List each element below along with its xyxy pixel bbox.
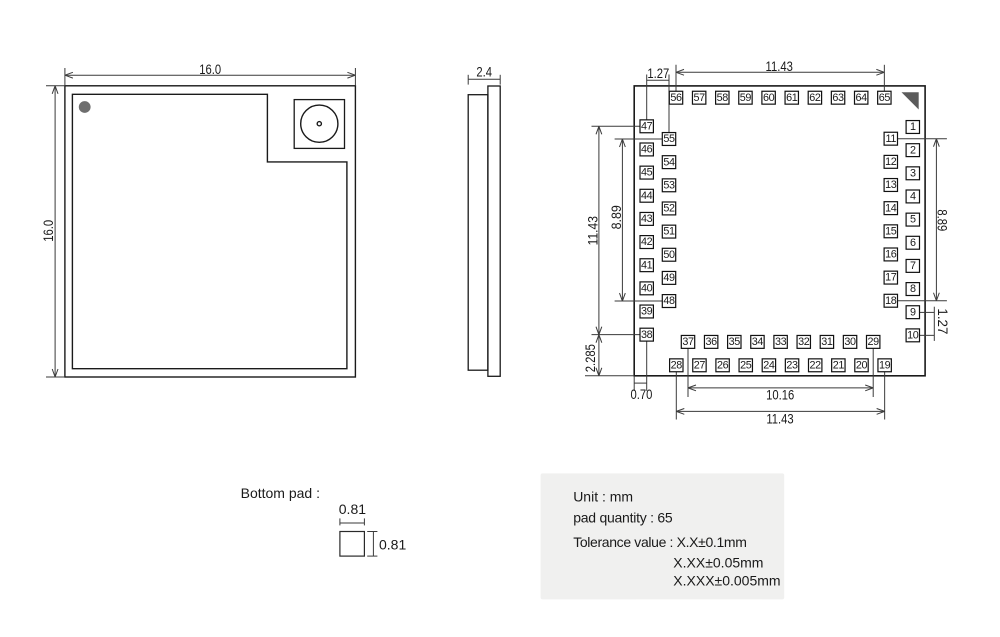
svg-text:X.XX±0.05mm: X.XX±0.05mm xyxy=(673,555,763,571)
svg-text:10: 10 xyxy=(907,329,919,341)
svg-text:38: 38 xyxy=(641,329,653,341)
svg-text:24: 24 xyxy=(763,359,775,371)
svg-text:15: 15 xyxy=(885,225,897,237)
svg-text:44: 44 xyxy=(641,190,653,202)
svg-text:0.81: 0.81 xyxy=(339,501,366,517)
svg-text:0.81: 0.81 xyxy=(379,536,406,552)
svg-text:25: 25 xyxy=(740,359,752,371)
svg-text:8.89: 8.89 xyxy=(609,205,625,229)
svg-text:40: 40 xyxy=(641,282,653,294)
svg-text:7: 7 xyxy=(910,260,916,272)
svg-text:54: 54 xyxy=(663,156,675,168)
svg-text:34: 34 xyxy=(752,336,764,348)
svg-text:43: 43 xyxy=(641,213,653,225)
svg-text:9: 9 xyxy=(910,306,916,318)
svg-text:30: 30 xyxy=(844,336,856,348)
svg-text:27: 27 xyxy=(694,359,706,371)
svg-text:56: 56 xyxy=(670,92,682,104)
svg-text:X.XXX±0.005mm: X.XXX±0.005mm xyxy=(673,573,780,589)
svg-text:33: 33 xyxy=(775,336,787,348)
svg-text:1.27: 1.27 xyxy=(935,308,950,334)
svg-text:36: 36 xyxy=(705,336,717,348)
svg-text:2.285: 2.285 xyxy=(583,344,598,372)
svg-text:22: 22 xyxy=(810,359,822,371)
svg-text:45: 45 xyxy=(641,167,653,179)
svg-text:Unit : mm: Unit : mm xyxy=(573,489,633,505)
svg-text:11.43: 11.43 xyxy=(766,412,793,427)
svg-text:18: 18 xyxy=(885,295,897,307)
svg-text:17: 17 xyxy=(885,272,897,284)
svg-text:50: 50 xyxy=(663,249,675,261)
svg-text:28: 28 xyxy=(671,359,683,371)
svg-text:51: 51 xyxy=(663,226,675,238)
svg-text:0.70: 0.70 xyxy=(631,387,653,402)
svg-text:55: 55 xyxy=(663,133,675,145)
svg-text:Tolerance value : X.X±0.1mm: Tolerance value : X.X±0.1mm xyxy=(573,534,746,550)
svg-text:26: 26 xyxy=(717,359,729,371)
svg-text:31: 31 xyxy=(821,336,833,348)
svg-text:2: 2 xyxy=(910,144,916,156)
svg-text:32: 32 xyxy=(798,336,810,348)
svg-text:23: 23 xyxy=(786,359,798,371)
svg-text:64: 64 xyxy=(856,92,868,104)
svg-text:16.0: 16.0 xyxy=(199,62,221,77)
svg-text:21: 21 xyxy=(833,359,845,371)
svg-text:59: 59 xyxy=(740,92,752,104)
svg-text:48: 48 xyxy=(663,295,675,307)
svg-text:35: 35 xyxy=(729,336,741,348)
svg-text:5: 5 xyxy=(910,214,916,226)
svg-text:12: 12 xyxy=(885,156,897,168)
svg-text:60: 60 xyxy=(763,92,775,104)
svg-text:1: 1 xyxy=(910,121,916,133)
svg-text:53: 53 xyxy=(663,179,675,191)
svg-text:19: 19 xyxy=(879,359,891,371)
svg-text:20: 20 xyxy=(856,359,868,371)
svg-text:52: 52 xyxy=(663,203,675,215)
svg-text:16.0: 16.0 xyxy=(41,220,56,242)
svg-text:11.43: 11.43 xyxy=(766,59,793,74)
svg-text:8.89: 8.89 xyxy=(934,209,949,231)
svg-text:41: 41 xyxy=(641,259,653,271)
svg-text:57: 57 xyxy=(693,92,705,104)
svg-text:65: 65 xyxy=(879,92,891,104)
svg-text:Bottom pad :: Bottom pad : xyxy=(241,485,320,501)
svg-text:8: 8 xyxy=(910,283,916,295)
svg-text:10.16: 10.16 xyxy=(766,387,794,402)
svg-text:63: 63 xyxy=(832,92,844,104)
svg-text:46: 46 xyxy=(641,144,653,156)
svg-text:49: 49 xyxy=(663,272,675,284)
svg-text:39: 39 xyxy=(641,306,653,318)
svg-text:2.4: 2.4 xyxy=(476,65,492,80)
svg-text:4: 4 xyxy=(910,191,916,203)
svg-text:47: 47 xyxy=(641,120,653,132)
svg-text:16: 16 xyxy=(885,249,897,261)
svg-text:6: 6 xyxy=(910,237,916,249)
svg-text:11.43: 11.43 xyxy=(585,216,601,245)
svg-text:11: 11 xyxy=(886,133,897,145)
svg-text:37: 37 xyxy=(682,336,694,348)
svg-text:3: 3 xyxy=(910,167,916,179)
svg-text:62: 62 xyxy=(809,92,821,104)
svg-text:58: 58 xyxy=(717,92,729,104)
svg-text:29: 29 xyxy=(868,336,880,348)
svg-text:61: 61 xyxy=(786,92,798,104)
svg-text:pad quantity : 65: pad quantity : 65 xyxy=(573,510,673,526)
svg-text:42: 42 xyxy=(641,236,653,248)
svg-text:13: 13 xyxy=(885,179,897,191)
svg-text:14: 14 xyxy=(885,202,897,214)
svg-text:1.27: 1.27 xyxy=(647,66,669,81)
